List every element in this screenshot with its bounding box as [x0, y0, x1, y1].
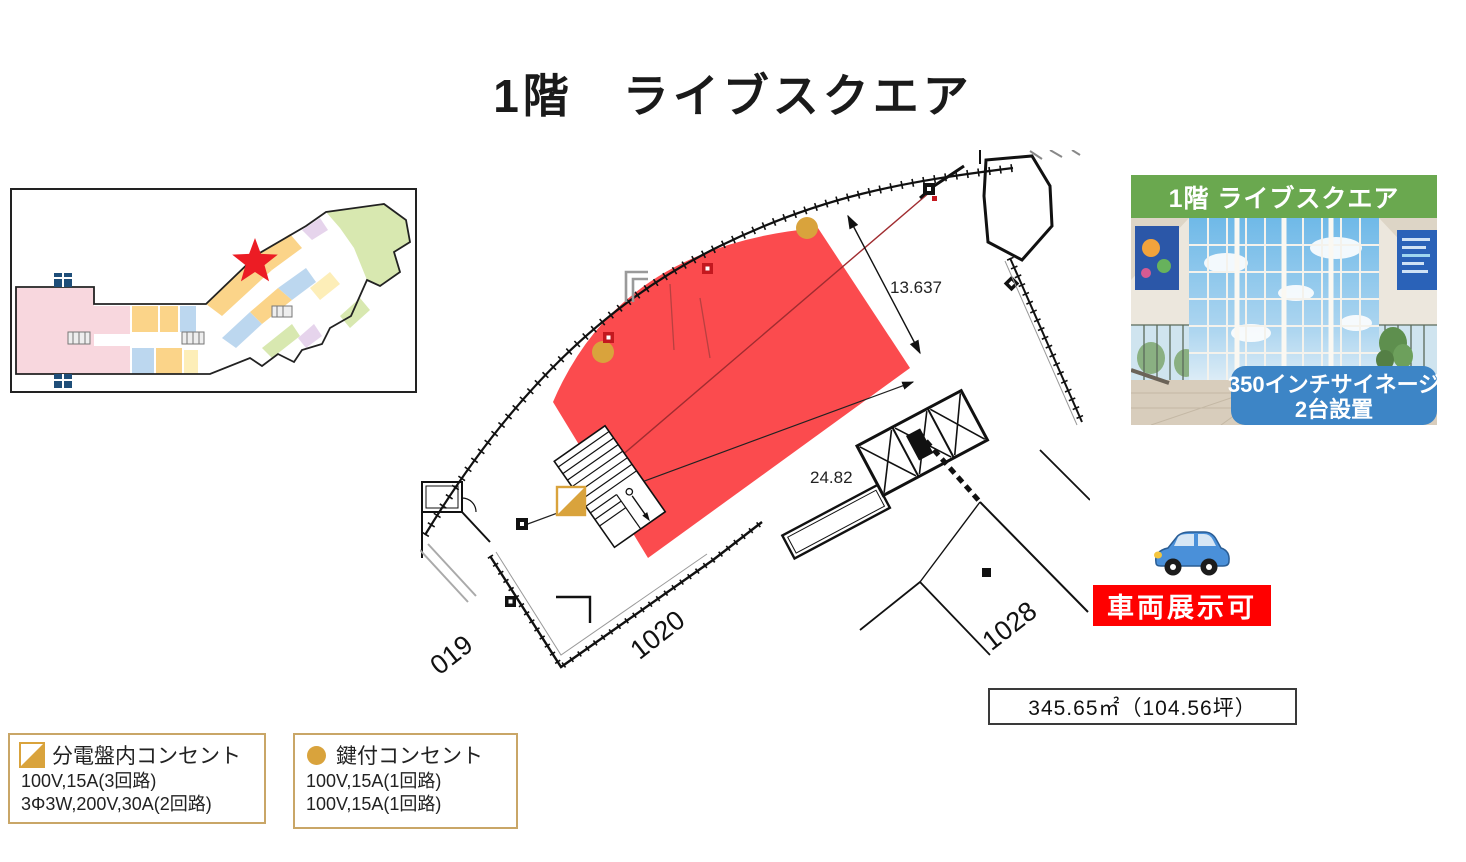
signage-screen-left	[1135, 226, 1179, 290]
legend-keyed-title: 鍵付コンセント	[336, 740, 483, 770]
legend-keyed-line2: 100V,15A(1回路)	[306, 793, 507, 816]
room-label-1028: 1028	[977, 596, 1043, 657]
signage-screen-right	[1397, 230, 1437, 290]
area-box: 345.65㎡（104.56坪）	[988, 688, 1297, 725]
column-core	[520, 522, 524, 526]
photo-card: 1階 ライブスクエア	[1131, 175, 1437, 425]
keyed-outlet-marker	[592, 341, 614, 363]
page-title: 1階 ライブスクエア	[0, 60, 1466, 126]
column	[982, 568, 991, 577]
floor-plan: 13.637 24.82 019 1020 1028	[420, 150, 1090, 690]
overview-map	[10, 188, 417, 393]
legend-keyed-line1: 100V,15A(1回路)	[306, 770, 507, 793]
atrium-photo: 350インチサイネージ 2台設置	[1131, 218, 1437, 425]
legend-panel-title: 分電盤内コンセント	[52, 740, 241, 770]
vehicle-banner: 車両展示可	[1093, 585, 1271, 626]
column-core	[927, 187, 931, 191]
signage-label: 350インチサイネージ 2台設置	[1228, 366, 1437, 425]
legend-panel-outlet: 分電盤内コンセント 100V,15A(3回路) 3Φ3W,200V,30A(2回…	[8, 733, 266, 824]
bottom-walls	[490, 522, 762, 667]
signage-label-line1: 350インチサイネージ	[1228, 372, 1437, 397]
room-label-1019: 019	[424, 629, 478, 680]
dimension-width-label: 13.637	[890, 278, 942, 297]
photo-header: 1階 ライブスクエア	[1131, 175, 1437, 218]
keyed-outlet-marker	[796, 217, 818, 239]
slide: 1階 ライブスクエア	[0, 0, 1466, 862]
keyed-outlet-icon	[307, 746, 326, 765]
left-rooms	[420, 482, 490, 602]
signage-label-line2: 2台設置	[1295, 397, 1373, 422]
legend-panel-line2: 3Φ3W,200V,30A(2回路)	[21, 793, 255, 816]
panel-outlet-marker	[557, 487, 585, 515]
room-label-1020: 1020	[625, 605, 691, 666]
dimension-length-label: 24.82	[810, 468, 853, 487]
panel-outlet-icon	[19, 742, 45, 768]
legend-panel-line1: 100V,15A(3回路)	[21, 770, 255, 793]
car-icon	[1146, 527, 1234, 579]
legend-keyed-outlet: 鍵付コンセント 100V,15A(1回路) 100V,15A(1回路)	[293, 733, 518, 829]
